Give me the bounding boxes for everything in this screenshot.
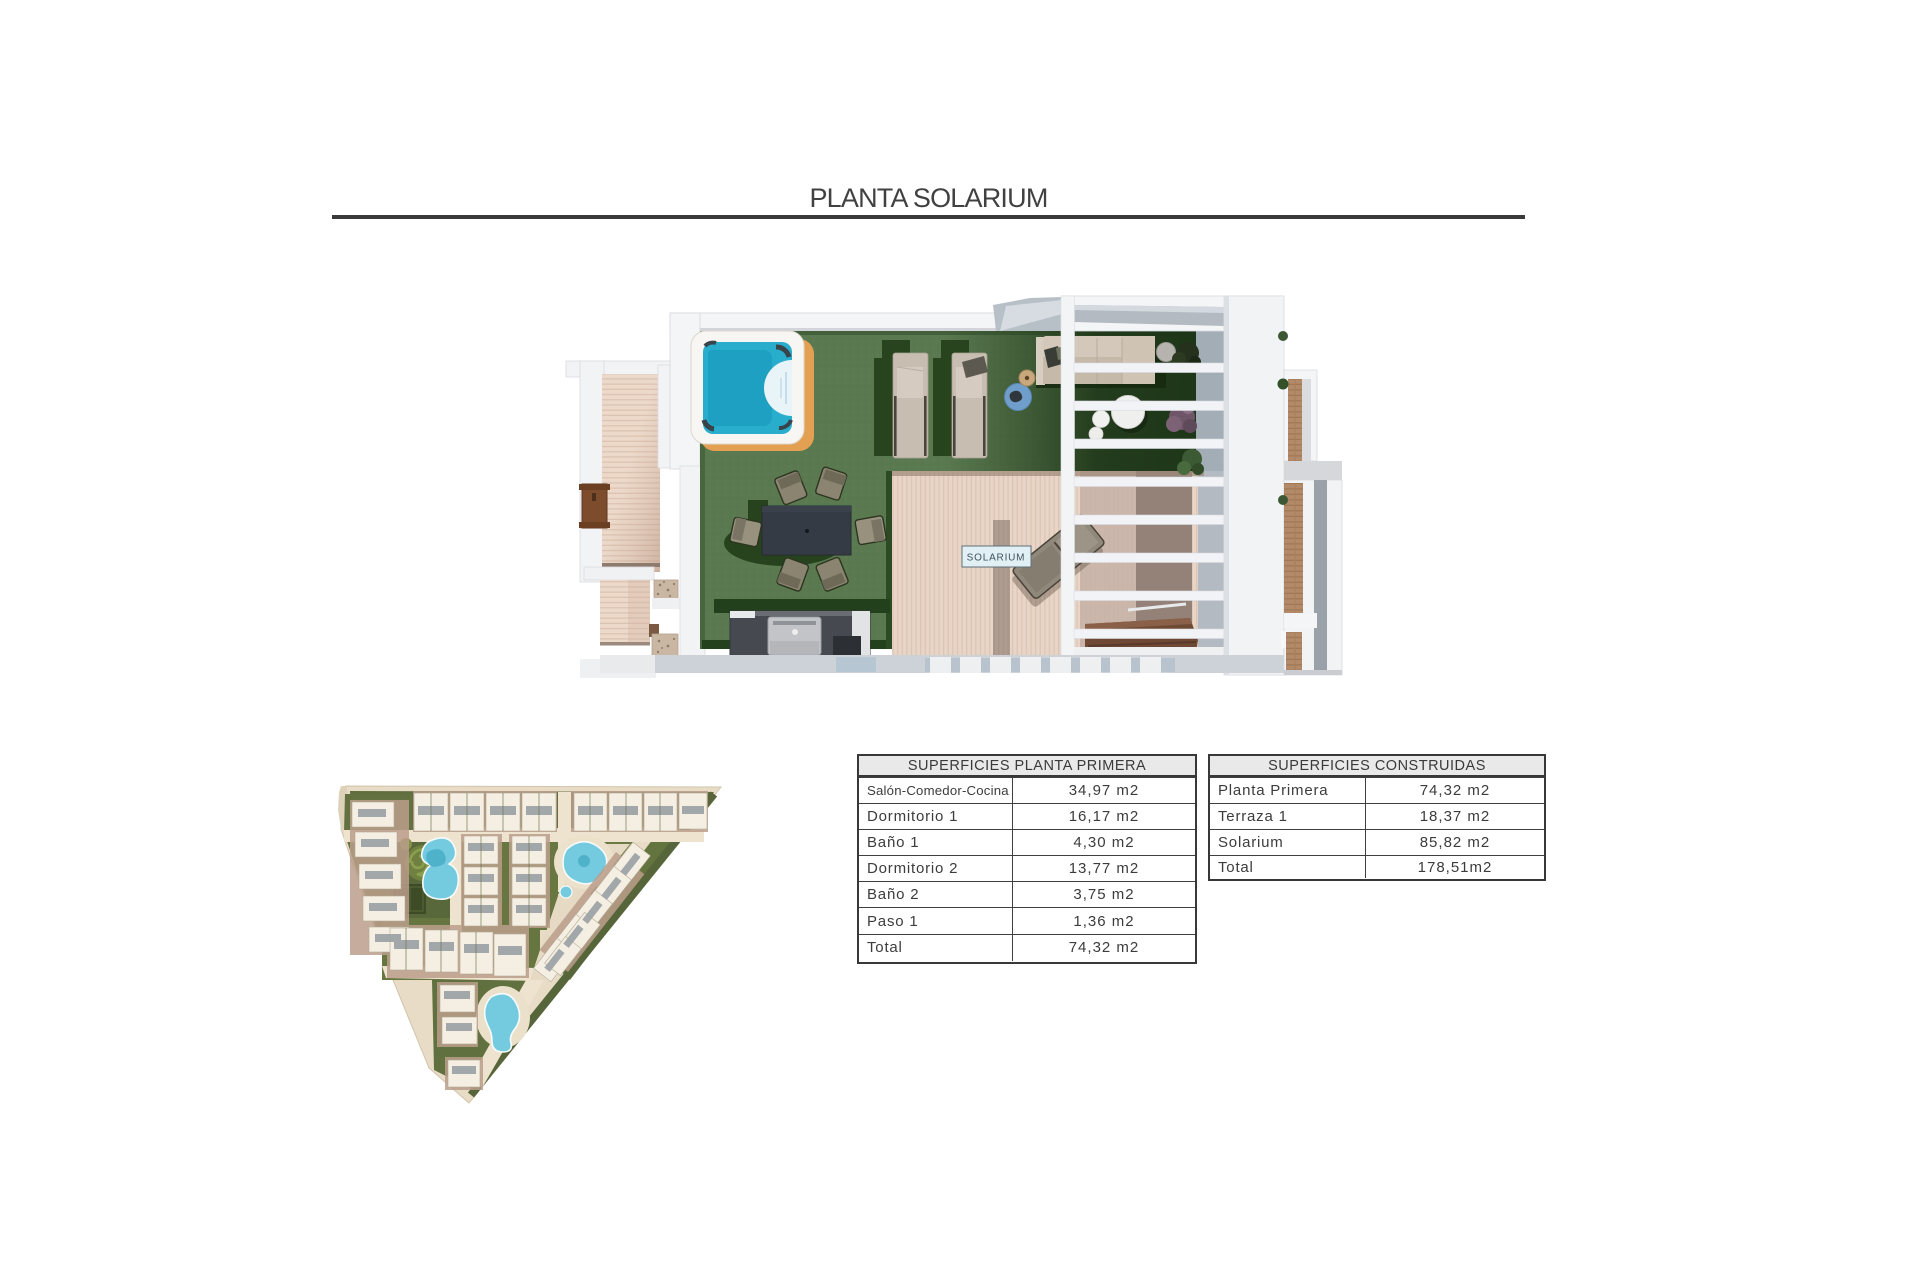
svg-text:SOLARIUM: SOLARIUM (967, 553, 1026, 564)
